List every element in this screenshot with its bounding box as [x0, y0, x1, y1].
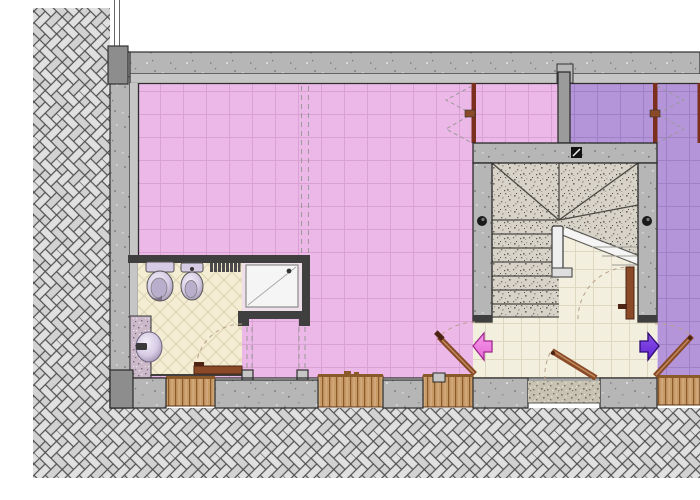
stair-left-wall-cap [473, 315, 492, 322]
purple-room-floor [658, 83, 700, 378]
bidet [181, 263, 203, 300]
stair-right-wall-cap [638, 315, 657, 322]
top-wall-inner-band [128, 74, 700, 83]
stairwell [473, 143, 657, 378]
understair-door [626, 267, 634, 319]
pier-2 [215, 380, 318, 408]
bathroom-door [194, 366, 242, 374]
top-left-pier [108, 46, 128, 84]
casement-handle-right [650, 110, 660, 117]
doormat [528, 381, 600, 403]
bathroom-door-handle [194, 362, 204, 367]
newel-dot-left-highlight [481, 218, 484, 221]
bidet-faucet [190, 267, 194, 271]
window-purple [657, 377, 700, 405]
floor-plan-drawing [0, 0, 700, 500]
stair-top-wall [473, 143, 657, 163]
pier-4 [473, 378, 528, 408]
washbasin-faucet [136, 343, 147, 350]
stair-handrail-foot [552, 268, 572, 277]
window-pink-1 [318, 376, 383, 407]
understair-door-handle [618, 304, 627, 309]
stair-left-wall [473, 163, 492, 322]
pier-5 [600, 378, 657, 408]
newel-dot-right-highlight [646, 218, 649, 221]
window-bathroom [166, 378, 215, 406]
wall-stub [242, 370, 253, 381]
newel-dot-left [477, 216, 487, 226]
corner-pier [110, 370, 133, 408]
stair-right-wall [638, 163, 657, 322]
pier-3 [383, 380, 423, 408]
stair-handrail [552, 226, 563, 274]
floor-plan-page [0, 0, 700, 500]
left-wall [110, 52, 130, 408]
wall-axis-line [115, 0, 120, 52]
wall-stub [297, 370, 308, 381]
wall-stub [433, 373, 445, 382]
shower-drain [287, 269, 292, 274]
entrance-door-handle [551, 351, 555, 355]
casement-handle-left [465, 110, 475, 117]
window-pink-2 [423, 376, 473, 407]
annex-partition-wall [558, 72, 570, 143]
paving-bottom-field [110, 408, 700, 478]
newel-dot-right [642, 216, 652, 226]
purple-door-handle [688, 336, 692, 340]
purple-annex-floor [570, 83, 653, 143]
top-wall [110, 52, 700, 74]
toilet [146, 262, 174, 301]
pink-annex-floor [476, 83, 558, 143]
paving-left-strip [33, 8, 110, 478]
